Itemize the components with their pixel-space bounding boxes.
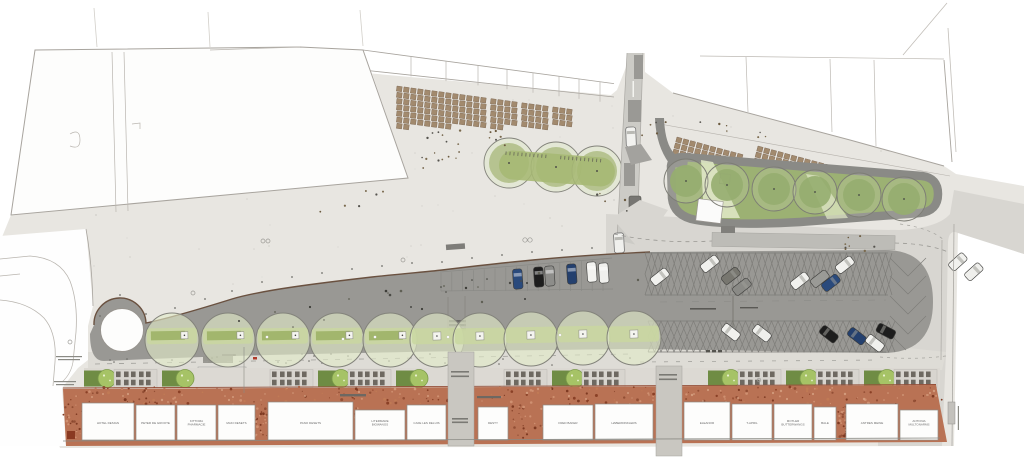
- svg-text:ANTRES MEINE: ANTRES MEINE: [861, 421, 884, 425]
- svg-text:PETER DE GROOTE: PETER DE GROOTE: [141, 421, 170, 425]
- svg-text:FRED BAKER: FRED BAKER: [558, 421, 578, 425]
- svg-text:T-APRIL: T-APRIL: [746, 421, 758, 425]
- svg-text:PHARMACIE: PHARMACIE: [188, 422, 206, 426]
- svg-text:BALE: BALE: [821, 421, 829, 425]
- svg-text:DESTY: DESTY: [488, 421, 498, 425]
- svg-text:HABERDINKLERS: HABERDINKLERS: [611, 421, 636, 425]
- svg-text:MULTONARMS: MULTONARMS: [908, 422, 929, 426]
- svg-text:PANO DESETS: PANO DESETS: [300, 421, 321, 425]
- svg-text:BIOWANGS: BIOWANGS: [372, 422, 388, 426]
- svg-text:CAFE LES DELUIS: CAFE LES DELUIS: [413, 421, 439, 425]
- svg-text:ELEANOR: ELEANOR: [700, 421, 715, 425]
- svg-text:BUTTERWANGS: BUTTERWANGS: [781, 422, 804, 426]
- svg-text:HOTEL DESIGN: HOTEL DESIGN: [97, 421, 119, 425]
- svg-text:MAKI DESETS: MAKI DESETS: [226, 421, 246, 425]
